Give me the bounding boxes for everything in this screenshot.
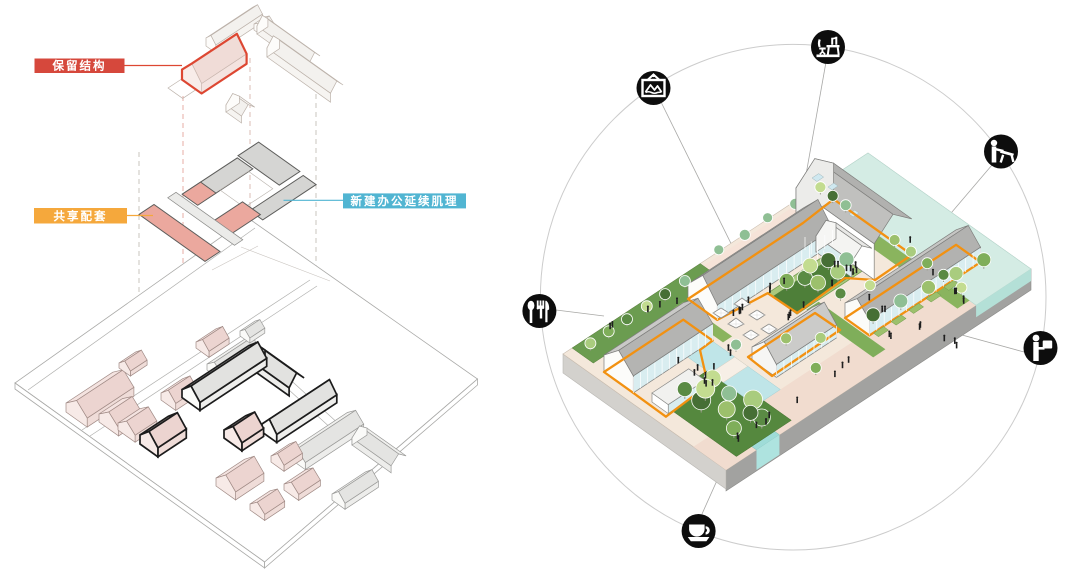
- svg-text:共享配套: 共享配套: [54, 209, 108, 223]
- svg-text:保留结构: 保留结构: [52, 59, 107, 73]
- svg-text:新建办公延续肌理: 新建办公延续肌理: [351, 194, 459, 208]
